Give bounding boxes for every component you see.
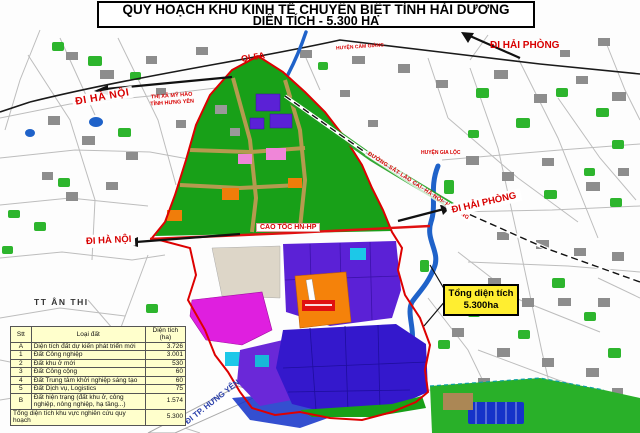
table-row: 5 Đất Dịch vụ, Logistics 75 <box>11 385 186 393</box>
header-loai-dat: Loại đất <box>31 327 145 343</box>
map-title-line2: DIỆN TÍCH - 5.300 HA <box>99 16 533 27</box>
footer-value: 5.300 <box>145 409 185 425</box>
row-b-value: 1.574 <box>145 393 185 409</box>
row-1-label: Đất Công nghiệp <box>31 351 145 359</box>
row-3-stt: 3 <box>11 368 32 376</box>
label-tt-an-thi: TT ÂN THI <box>34 297 89 307</box>
row-2-label: Đất khu ở mới <box>31 359 145 367</box>
row-5-stt: 5 <box>11 385 32 393</box>
row-1-value: 3.001 <box>145 351 185 359</box>
total-area-label: Tổng diện tích <box>446 288 516 300</box>
table-row: 2 Đất khu ở mới 530 <box>11 359 186 367</box>
table-row: A Diện tích đất dự kiến phát triển mới 3… <box>11 342 186 350</box>
header-stt: Stt <box>11 327 32 343</box>
table-header-row: Stt Loại đất Diện tích (ha) <box>11 327 186 343</box>
row-b-stt: B <box>11 393 32 409</box>
table-row: 4 Đất Trung tâm khởi nghiệp sáng tạo 60 <box>11 376 186 384</box>
row-2-value: 530 <box>145 359 185 367</box>
footer-label: Tổng diện tích khu vực nghiên cứu quy ho… <box>11 409 146 425</box>
table-footer-row: Tổng diện tích khu vực nghiên cứu quy ho… <box>11 409 186 425</box>
row-3-value: 60 <box>145 368 185 376</box>
table-row: B Đất hiện trạng (đất khu ở, công nghiệp… <box>11 393 186 409</box>
row-4-stt: 4 <box>11 376 32 384</box>
label-huyen-gia-loc: HUYỆN GIA LỘC <box>421 150 461 156</box>
row-2-stt: 2 <box>11 359 32 367</box>
row-5-value: 75 <box>145 385 185 393</box>
row-a-stt: A <box>11 342 32 350</box>
southeast-fields <box>430 378 640 433</box>
row-3-label: Đất Công cộng <box>31 368 145 376</box>
map-title-box: QUY HOẠCH KHU KINH TẾ CHUYÊN BIỆT TỈNH H… <box>97 1 535 28</box>
row-a-label: Diện tích đất dự kiến phát triển mới <box>31 342 145 350</box>
planning-map-image: QUY HOẠCH KHU KINH TẾ CHUYÊN BIỆT TỈNH H… <box>0 0 640 433</box>
row-b-label: Đất hiện trạng (đất khu ở, công nghiệp, … <box>31 393 145 409</box>
table-row: 1 Đất Công nghiệp 3.001 <box>11 351 186 359</box>
total-area-value: 5.300ha <box>446 300 516 312</box>
label-di-ha-noi-mid: ĐI HÀ NỘI <box>82 233 136 249</box>
table-row: 3 Đất Công cộng 60 <box>11 368 186 376</box>
total-area-callout: Tổng diện tích 5.300ha <box>443 284 519 316</box>
land-use-table: Stt Loại đất Diện tích (ha) A Diện tích … <box>10 326 186 426</box>
row-4-label: Đất Trung tâm khởi nghiệp sáng tạo <box>31 376 145 384</box>
header-dien-tich: Diện tích (ha) <box>145 327 185 343</box>
row-a-value: 3.726 <box>145 342 185 350</box>
label-di-hai-phong-top: ĐI HẢI PHÒNG <box>490 40 559 51</box>
row-5-label: Đất Dịch vụ, Logistics <box>31 385 145 393</box>
row-1-stt: 1 <box>11 351 32 359</box>
row-4-value: 60 <box>145 376 185 384</box>
label-cao-toc-hn-hp: CAO TỐC HN-HP <box>256 223 320 232</box>
